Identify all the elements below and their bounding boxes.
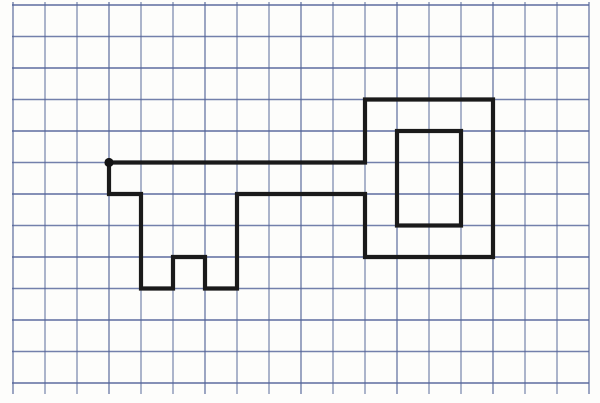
grid-paper-figure <box>0 0 600 403</box>
paper-background <box>0 0 600 403</box>
start-point-dot <box>104 158 113 167</box>
grid-paper-page <box>0 0 600 403</box>
